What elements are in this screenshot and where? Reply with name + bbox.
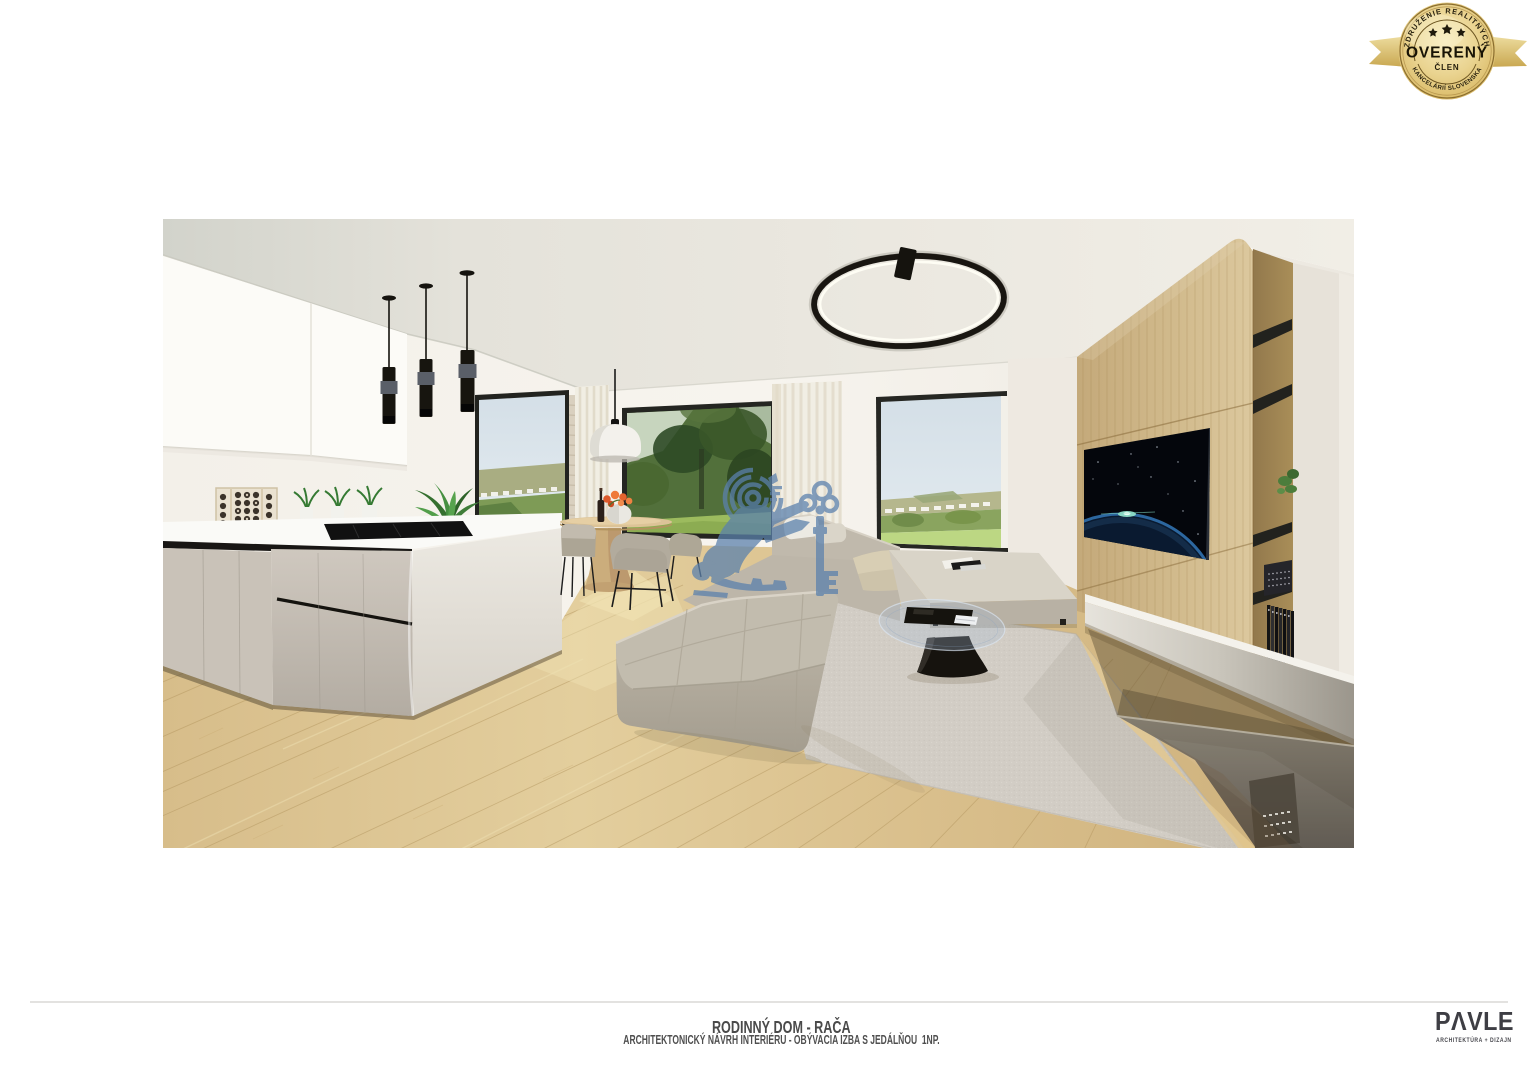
svg-text:OVERENÝ: OVERENÝ bbox=[1406, 44, 1488, 62]
svg-text:ČLEN: ČLEN bbox=[1435, 63, 1460, 72]
